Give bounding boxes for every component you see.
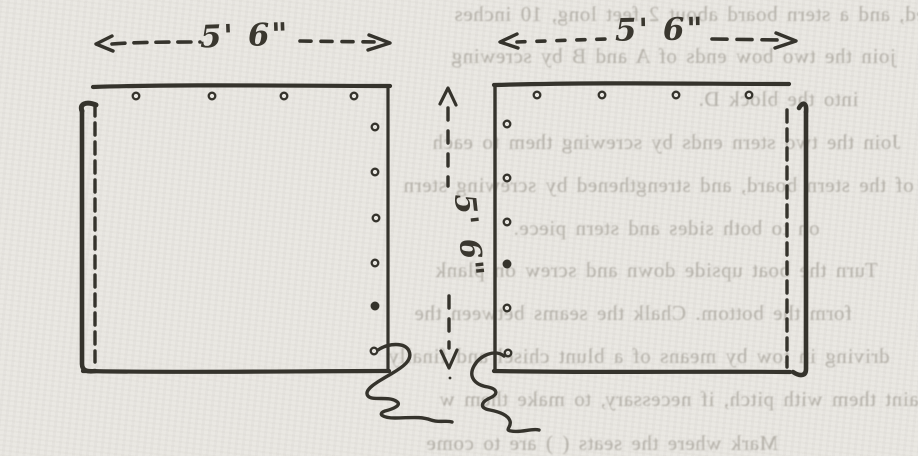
panel-top-edge (494, 83, 789, 85)
dashed-line (112, 42, 200, 44)
screw-hole-dot (351, 93, 358, 100)
screw-hole-dot (372, 169, 379, 176)
left-plank-panel (81, 85, 452, 422)
screw-hole-dot (281, 93, 288, 100)
screw-hole-dot (534, 92, 541, 99)
screw-hole-dot (599, 92, 606, 99)
screw-holes-right (371, 124, 380, 355)
arrow-up-icon (440, 88, 456, 105)
screw-hole-dot (746, 92, 753, 99)
right-width-dimension-label: 5' 6" (615, 11, 705, 49)
screw-holes-left (504, 121, 512, 357)
screw-holes-top (133, 93, 358, 100)
screw-hole-dot (209, 93, 216, 100)
screw-hole-dot (373, 215, 380, 222)
stern-strip (793, 112, 806, 375)
screw-hole-dot (504, 175, 511, 182)
right-plank-panel (472, 83, 806, 431)
screw-hole-dot (371, 348, 378, 355)
dashed-line (517, 39, 608, 42)
left-width-dimension-label: 5' 6" (199, 16, 290, 55)
arrow-left-icon (500, 34, 518, 48)
dashed-line (712, 39, 778, 40)
panel-bottom-edge (494, 371, 790, 372)
screw-hole-dot (504, 261, 511, 268)
scanned-page: eed, and a stern board about 2 feet long… (0, 0, 918, 456)
screw-hole-dot (372, 303, 379, 310)
panel-top-edge (93, 85, 390, 87)
screw-hole-dot (504, 121, 511, 128)
stray-dot (449, 377, 452, 380)
screw-hole-dot (505, 350, 512, 357)
break-squiggle (472, 353, 539, 431)
panel-bottom-edge (83, 371, 389, 372)
dashed-line (300, 41, 376, 42)
break-squiggle (367, 345, 452, 423)
screw-hole-dot (372, 260, 379, 267)
screw-holes-top (534, 92, 753, 99)
screw-hole-dot (133, 93, 140, 100)
screw-hole-dot (504, 305, 511, 312)
stem-strip (82, 111, 95, 371)
arrow-down-icon (441, 350, 457, 368)
screw-hole-dot (372, 124, 379, 131)
screw-hole-dot (673, 92, 680, 99)
screw-hole-dot (504, 219, 511, 226)
